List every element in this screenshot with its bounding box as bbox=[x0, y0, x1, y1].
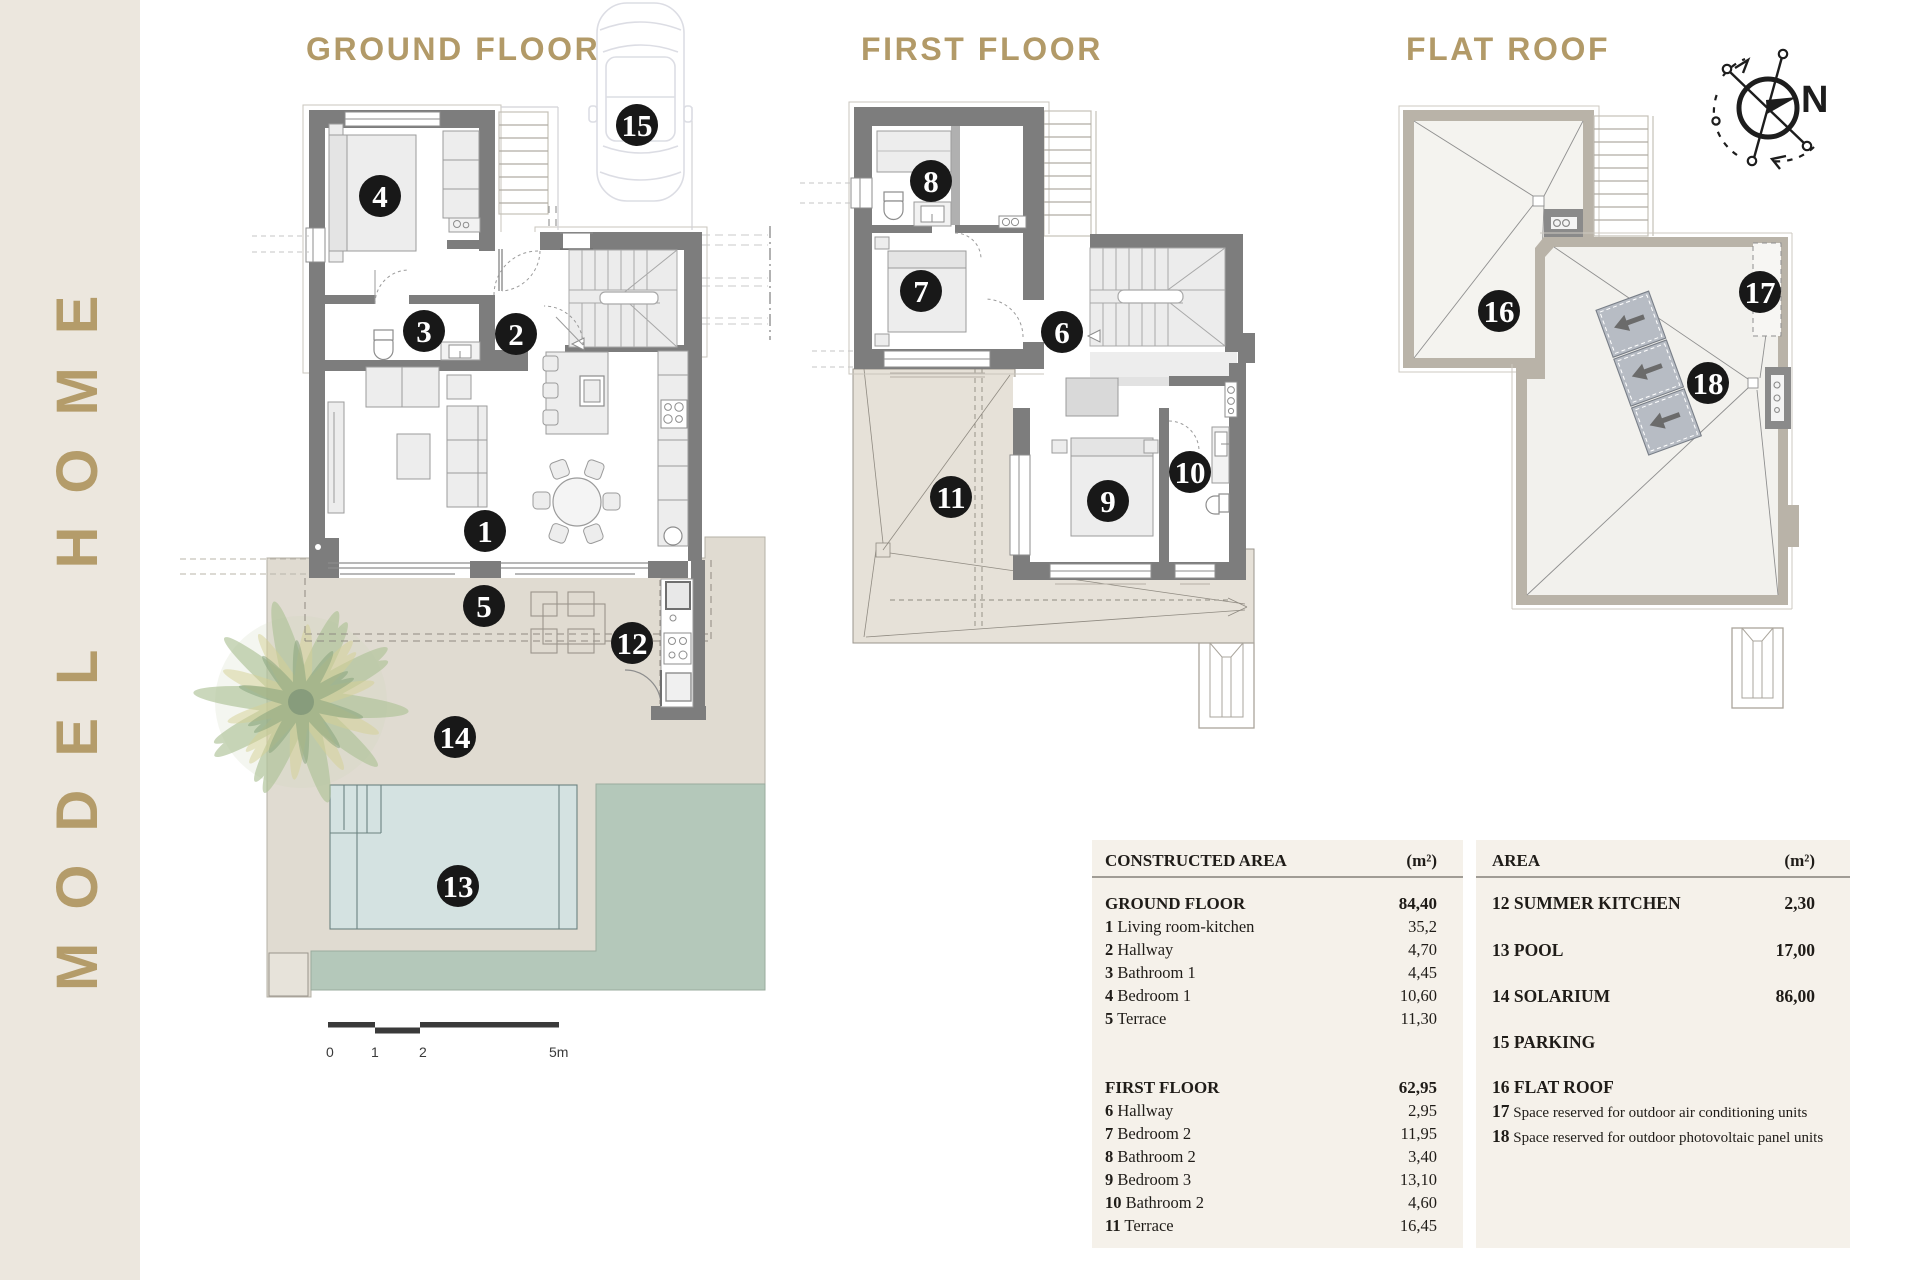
svg-text:11,95: 11,95 bbox=[1400, 1124, 1437, 1143]
svg-text:(m²): (m²) bbox=[1406, 851, 1437, 870]
svg-text:12 SUMMER KITCHEN: 12 SUMMER KITCHEN bbox=[1492, 893, 1681, 913]
svg-text:7: 7 bbox=[913, 274, 929, 309]
svg-text:9: 9 bbox=[1100, 484, 1116, 519]
svg-text:4: 4 bbox=[372, 179, 388, 214]
svg-text:10: 10 bbox=[1175, 455, 1206, 490]
svg-text:5 Terrace: 5 Terrace bbox=[1105, 1009, 1166, 1028]
svg-text:(m²): (m²) bbox=[1784, 851, 1815, 870]
svg-text:15: 15 bbox=[622, 108, 653, 143]
svg-text:5m: 5m bbox=[549, 1044, 568, 1060]
svg-text:N: N bbox=[1801, 79, 1828, 121]
svg-text:10 Bathroom 2: 10 Bathroom 2 bbox=[1105, 1193, 1204, 1212]
svg-text:8: 8 bbox=[923, 164, 939, 199]
svg-text:9 Bedroom 3: 9 Bedroom 3 bbox=[1105, 1170, 1191, 1189]
svg-text:13: 13 bbox=[443, 869, 474, 904]
svg-text:1: 1 bbox=[371, 1044, 379, 1060]
svg-text:4 Bedroom 1: 4 Bedroom 1 bbox=[1105, 986, 1191, 1005]
svg-text:16: 16 bbox=[1484, 294, 1515, 329]
svg-text:FIRST FLOOR: FIRST FLOOR bbox=[861, 31, 1103, 67]
svg-text:2,30: 2,30 bbox=[1784, 893, 1815, 913]
svg-text:3: 3 bbox=[416, 314, 432, 349]
svg-text:1 Living room-kitchen: 1 Living room-kitchen bbox=[1105, 917, 1254, 936]
svg-text:1: 1 bbox=[477, 514, 493, 549]
svg-text:18: 18 bbox=[1693, 366, 1724, 401]
svg-text:13 POOL: 13 POOL bbox=[1492, 940, 1563, 960]
svg-text:3 Bathroom 1: 3 Bathroom 1 bbox=[1105, 963, 1196, 982]
svg-text:6 Hallway: 6 Hallway bbox=[1105, 1101, 1174, 1120]
svg-text:13,10: 13,10 bbox=[1400, 1170, 1437, 1189]
svg-text:11 Terrace: 11 Terrace bbox=[1105, 1216, 1174, 1235]
svg-text:0: 0 bbox=[326, 1044, 334, 1060]
svg-text:2 Hallway: 2 Hallway bbox=[1105, 940, 1174, 959]
svg-text:84,40: 84,40 bbox=[1399, 894, 1437, 913]
svg-text:16 FLAT ROOF: 16 FLAT ROOF bbox=[1492, 1077, 1614, 1097]
svg-text:16,45: 16,45 bbox=[1400, 1216, 1437, 1235]
svg-text:12: 12 bbox=[617, 626, 648, 661]
svg-text:3,40: 3,40 bbox=[1408, 1147, 1437, 1166]
svg-text:11: 11 bbox=[936, 480, 965, 515]
svg-text:5: 5 bbox=[476, 589, 492, 624]
svg-text:4,70: 4,70 bbox=[1408, 940, 1437, 959]
svg-text:8 Bathroom 2: 8 Bathroom 2 bbox=[1105, 1147, 1196, 1166]
svg-text:2: 2 bbox=[508, 317, 524, 352]
svg-text:62,95: 62,95 bbox=[1399, 1078, 1437, 1097]
svg-text:AREA: AREA bbox=[1492, 851, 1541, 870]
svg-text:17,00: 17,00 bbox=[1776, 940, 1816, 960]
svg-text:86,00: 86,00 bbox=[1776, 986, 1816, 1006]
svg-text:35,2: 35,2 bbox=[1408, 917, 1437, 936]
svg-text:4,45: 4,45 bbox=[1408, 963, 1437, 982]
svg-text:7 Bedroom 2: 7 Bedroom 2 bbox=[1105, 1124, 1191, 1143]
svg-text:14: 14 bbox=[440, 720, 471, 755]
svg-text:FIRST FLOOR: FIRST FLOOR bbox=[1105, 1078, 1220, 1097]
svg-text:2,95: 2,95 bbox=[1408, 1101, 1437, 1120]
svg-text:GROUND FLOOR: GROUND FLOOR bbox=[1105, 894, 1246, 913]
svg-text:6: 6 bbox=[1054, 315, 1070, 350]
svg-text:FLAT ROOF: FLAT ROOF bbox=[1406, 31, 1610, 67]
svg-text:14 SOLARIUM: 14 SOLARIUM bbox=[1492, 986, 1611, 1006]
svg-text:CONSTRUCTED AREA: CONSTRUCTED AREA bbox=[1105, 851, 1288, 870]
svg-text:15 PARKING: 15 PARKING bbox=[1492, 1032, 1596, 1052]
svg-text:MODEL HOME: MODEL HOME bbox=[45, 263, 110, 992]
svg-text:2: 2 bbox=[419, 1044, 427, 1060]
svg-text:11,30: 11,30 bbox=[1400, 1009, 1437, 1028]
svg-text:17: 17 bbox=[1745, 275, 1776, 310]
svg-text:4,60: 4,60 bbox=[1408, 1193, 1437, 1212]
svg-text:10,60: 10,60 bbox=[1400, 986, 1437, 1005]
svg-text:GROUND FLOOR: GROUND FLOOR bbox=[306, 31, 600, 67]
